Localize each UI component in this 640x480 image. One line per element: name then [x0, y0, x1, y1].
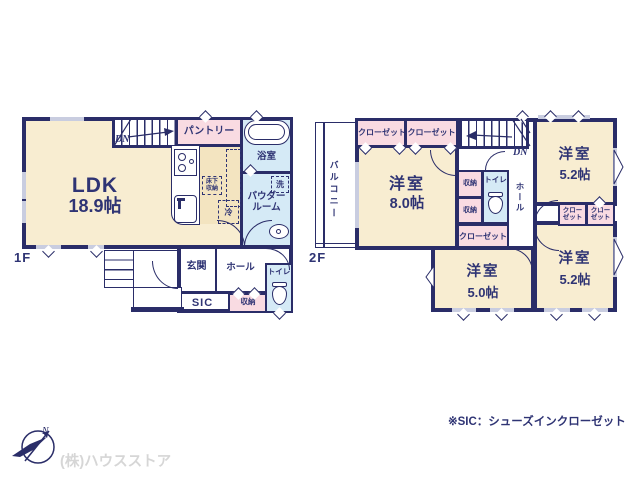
- floor1-label: 1F: [14, 250, 31, 265]
- stove-icon: [174, 149, 197, 176]
- f1-toilet: トイレ: [265, 263, 293, 313]
- window: [613, 237, 617, 277]
- window: [355, 162, 359, 228]
- f2-storage-a: 収納: [457, 170, 483, 198]
- floor-plan-canvas: DN 床下 収納 冷 浴室 洗 パウダー ルーム LDK 18.9帖 パントリー: [0, 0, 640, 480]
- hall-1f-label: ホール: [216, 262, 265, 273]
- compass-north-label: N: [41, 426, 50, 437]
- toilet-icon: [272, 286, 287, 305]
- closet-e-label: クロー: [591, 207, 611, 214]
- closet-c-label: クローゼット: [459, 232, 507, 241]
- pantry-counter-box: [226, 149, 241, 207]
- window: [22, 172, 26, 199]
- toilet-icon: [488, 196, 503, 214]
- f2-stairs-dn-label: DN: [513, 147, 527, 158]
- window: [50, 117, 84, 121]
- closet-b-label: クローゼット: [407, 128, 456, 137]
- balcony-rail: [323, 123, 325, 247]
- kitchen-sink-icon: [174, 195, 197, 223]
- room-ne-name: 洋室: [533, 147, 617, 164]
- washbasin-icon: [269, 224, 289, 239]
- window: [613, 148, 617, 186]
- room-se-name: 洋室: [533, 251, 617, 268]
- f1-stairs-dn-label: DN: [115, 134, 129, 145]
- balcony-rail: [316, 243, 356, 244]
- room-8-size: 8.0帖: [355, 196, 459, 213]
- closet-a-label: クローゼット: [358, 128, 404, 137]
- balcony-label: バルコニー: [328, 148, 339, 232]
- hall-2f-label: ホール: [515, 176, 525, 220]
- f2-closet-d: クロー ゼット: [558, 203, 587, 226]
- pantry-label: パントリー: [175, 126, 243, 138]
- toilet-2f-label: トイレ: [484, 176, 507, 185]
- f2-closet-c: クローゼット: [457, 224, 509, 248]
- window: [22, 201, 26, 223]
- underfloor-line2: 収納: [206, 186, 218, 192]
- company-name: (株)ハウスストア: [60, 450, 171, 471]
- fridge-label: 冷: [219, 208, 238, 217]
- f2-toilet: トイレ: [482, 170, 509, 224]
- ldk-size-label: 18.9帖: [40, 196, 150, 217]
- room-s-size: 5.0帖: [431, 285, 535, 300]
- porch-edge: [131, 307, 184, 312]
- storage-a-label: 収納: [459, 180, 481, 188]
- porch-steps: [104, 250, 134, 288]
- powder-room-label: パウダー ルーム: [240, 191, 293, 213]
- sic-label: SIC: [177, 297, 228, 310]
- entrance-label: 玄関: [177, 261, 216, 273]
- floor2-label: 2F: [309, 250, 326, 265]
- closet-d-label: クロー: [563, 207, 583, 214]
- room-8-name: 洋室: [355, 176, 459, 195]
- bathtub-icon: [244, 120, 290, 145]
- compass-icon: N: [12, 426, 54, 463]
- f2-stairs: [459, 118, 529, 149]
- f2-storage-b: 収納: [457, 197, 483, 224]
- washer-label: 洗: [272, 180, 288, 189]
- underfloor-storage-box: 床下 収納: [202, 176, 222, 195]
- storage-1f-label: 収納: [230, 298, 266, 307]
- room-ne-size: 5.2帖: [533, 167, 617, 182]
- underfloor-line1: 床下: [206, 179, 218, 185]
- room-se-size: 5.2帖: [533, 272, 617, 287]
- sic-note: ※SIC：シューズインクローゼット: [448, 413, 626, 429]
- storage-b-label: 収納: [459, 207, 481, 215]
- bath-label: 浴室: [240, 151, 293, 162]
